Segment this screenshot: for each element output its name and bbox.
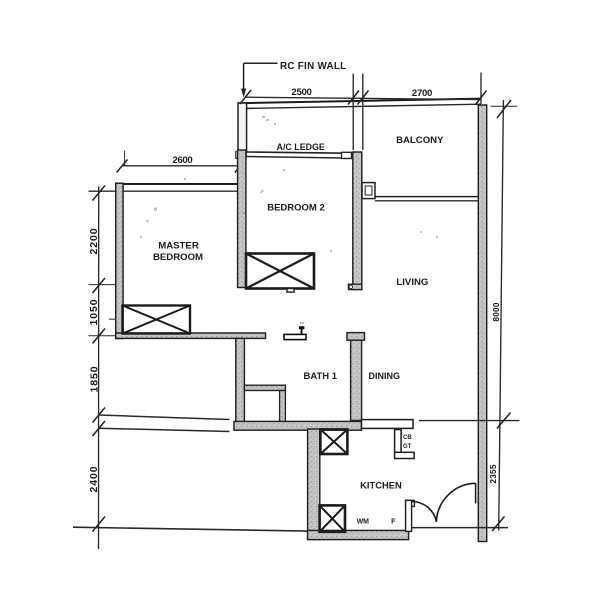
svg-text:2700: 2700 <box>412 88 432 99</box>
svg-text:1850: 1850 <box>88 366 100 393</box>
svg-text:8000: 8000 <box>491 302 501 321</box>
svg-text:LIVING: LIVING <box>396 277 428 288</box>
svg-text:F: F <box>391 518 396 525</box>
svg-text:1050: 1050 <box>88 299 100 326</box>
svg-text:BEDROOM 2: BEDROOM 2 <box>267 202 325 213</box>
svg-text:2200: 2200 <box>88 228 100 255</box>
svg-text:GT: GT <box>403 444 412 450</box>
svg-text:BALCONY: BALCONY <box>396 135 444 146</box>
svg-text:RC FIN WALL: RC FIN WALL <box>280 61 346 72</box>
svg-text:WM: WM <box>357 518 370 525</box>
svg-text:MASTER: MASTER <box>158 241 199 252</box>
svg-text:A/C LEDGE: A/C LEDGE <box>277 142 325 152</box>
svg-text:2355: 2355 <box>488 464 498 483</box>
svg-text:BEDROOM: BEDROOM <box>153 252 203 263</box>
svg-text:KITCHEN: KITCHEN <box>360 480 402 491</box>
svg-text:2500: 2500 <box>291 87 311 98</box>
svg-text:DINING: DINING <box>369 371 401 381</box>
svg-text:CB: CB <box>403 435 412 441</box>
svg-text:2600: 2600 <box>172 155 192 166</box>
svg-text:2400: 2400 <box>88 466 100 493</box>
svg-text:BATH 1: BATH 1 <box>303 371 337 382</box>
